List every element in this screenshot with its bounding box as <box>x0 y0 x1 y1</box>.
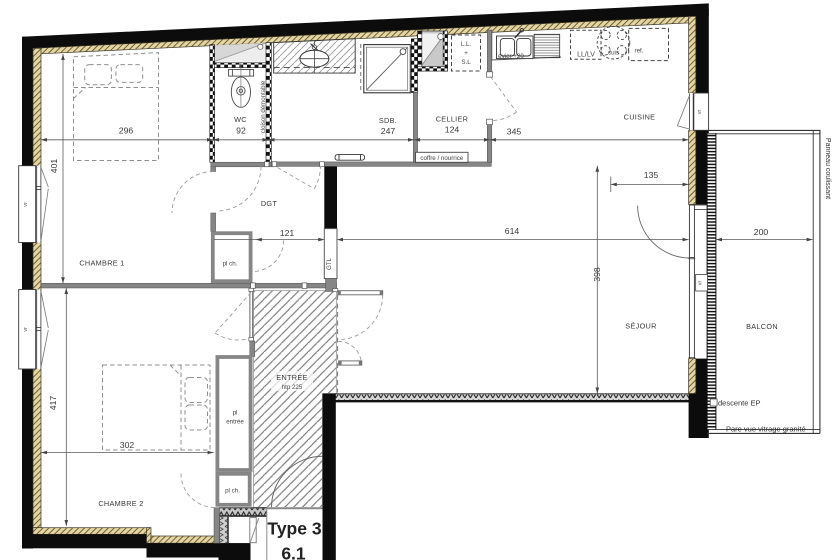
svg-text:cuis: cuis <box>608 50 619 57</box>
svg-text:614: 614 <box>505 226 520 236</box>
svg-text:L.L.: L.L. <box>461 41 472 48</box>
svg-text:pl ch.: pl ch. <box>223 261 238 268</box>
svg-text:Type 3: Type 3 <box>267 519 321 539</box>
svg-text:vr: vr <box>697 110 703 115</box>
svg-text:401: 401 <box>49 159 59 174</box>
svg-text:+: + <box>464 50 468 57</box>
svg-text:92: 92 <box>236 126 246 136</box>
svg-text:121: 121 <box>280 228 295 238</box>
svg-text:vr: vr <box>23 202 29 207</box>
svg-text:345: 345 <box>507 127 522 137</box>
svg-text:CHAMBRE 1: CHAMBRE 1 <box>79 259 124 268</box>
svg-text:6.1: 6.1 <box>281 544 306 560</box>
svg-text:200: 200 <box>754 227 769 237</box>
svg-text:135: 135 <box>644 170 659 180</box>
svg-text:Pare vue vitrage granité: Pare vue vitrage granité <box>726 425 806 434</box>
svg-text:pl ch.: pl ch. <box>225 488 240 495</box>
svg-text:124: 124 <box>445 125 460 135</box>
svg-text:descente EP: descente EP <box>718 399 761 408</box>
svg-text:ref.: ref. <box>635 48 644 55</box>
svg-text:SDB.: SDB. <box>379 116 397 125</box>
svg-text:Panneau coulissant: Panneau coulissant <box>824 138 831 199</box>
svg-text:ENTRÉE: ENTRÉE <box>276 373 307 382</box>
svg-text:WC: WC <box>234 115 247 124</box>
svg-text:vr: vr <box>698 281 704 286</box>
svg-text:417: 417 <box>48 396 58 411</box>
svg-text:398: 398 <box>592 267 602 282</box>
svg-text:vr: vr <box>23 327 29 332</box>
svg-text:CUISINE: CUISINE <box>624 113 656 122</box>
svg-text:296: 296 <box>119 126 134 136</box>
svg-text:S.L: S.L <box>461 59 471 66</box>
svg-text:évier +20: évier +20 <box>498 53 524 60</box>
svg-text:302: 302 <box>120 440 135 450</box>
svg-text:GTL: GTL <box>326 257 333 270</box>
svg-text:DGT: DGT <box>261 199 278 208</box>
svg-text:pl: pl <box>233 410 238 417</box>
svg-text:CELLIER: CELLIER <box>436 115 469 124</box>
svg-text:cloison démontable: cloison démontable <box>260 80 267 133</box>
svg-text:LL/LV: LL/LV <box>577 52 595 59</box>
svg-text:htp 225: htp 225 <box>282 384 303 391</box>
svg-text:CHAMBRE 2: CHAMBRE 2 <box>98 499 143 508</box>
svg-text:coffre / nourrice: coffre / nourrice <box>420 155 463 162</box>
svg-text:SÉJOUR: SÉJOUR <box>625 322 656 331</box>
svg-text:entrée: entrée <box>226 419 244 426</box>
svg-text:BALCON: BALCON <box>746 322 778 331</box>
svg-text:247: 247 <box>381 126 396 136</box>
